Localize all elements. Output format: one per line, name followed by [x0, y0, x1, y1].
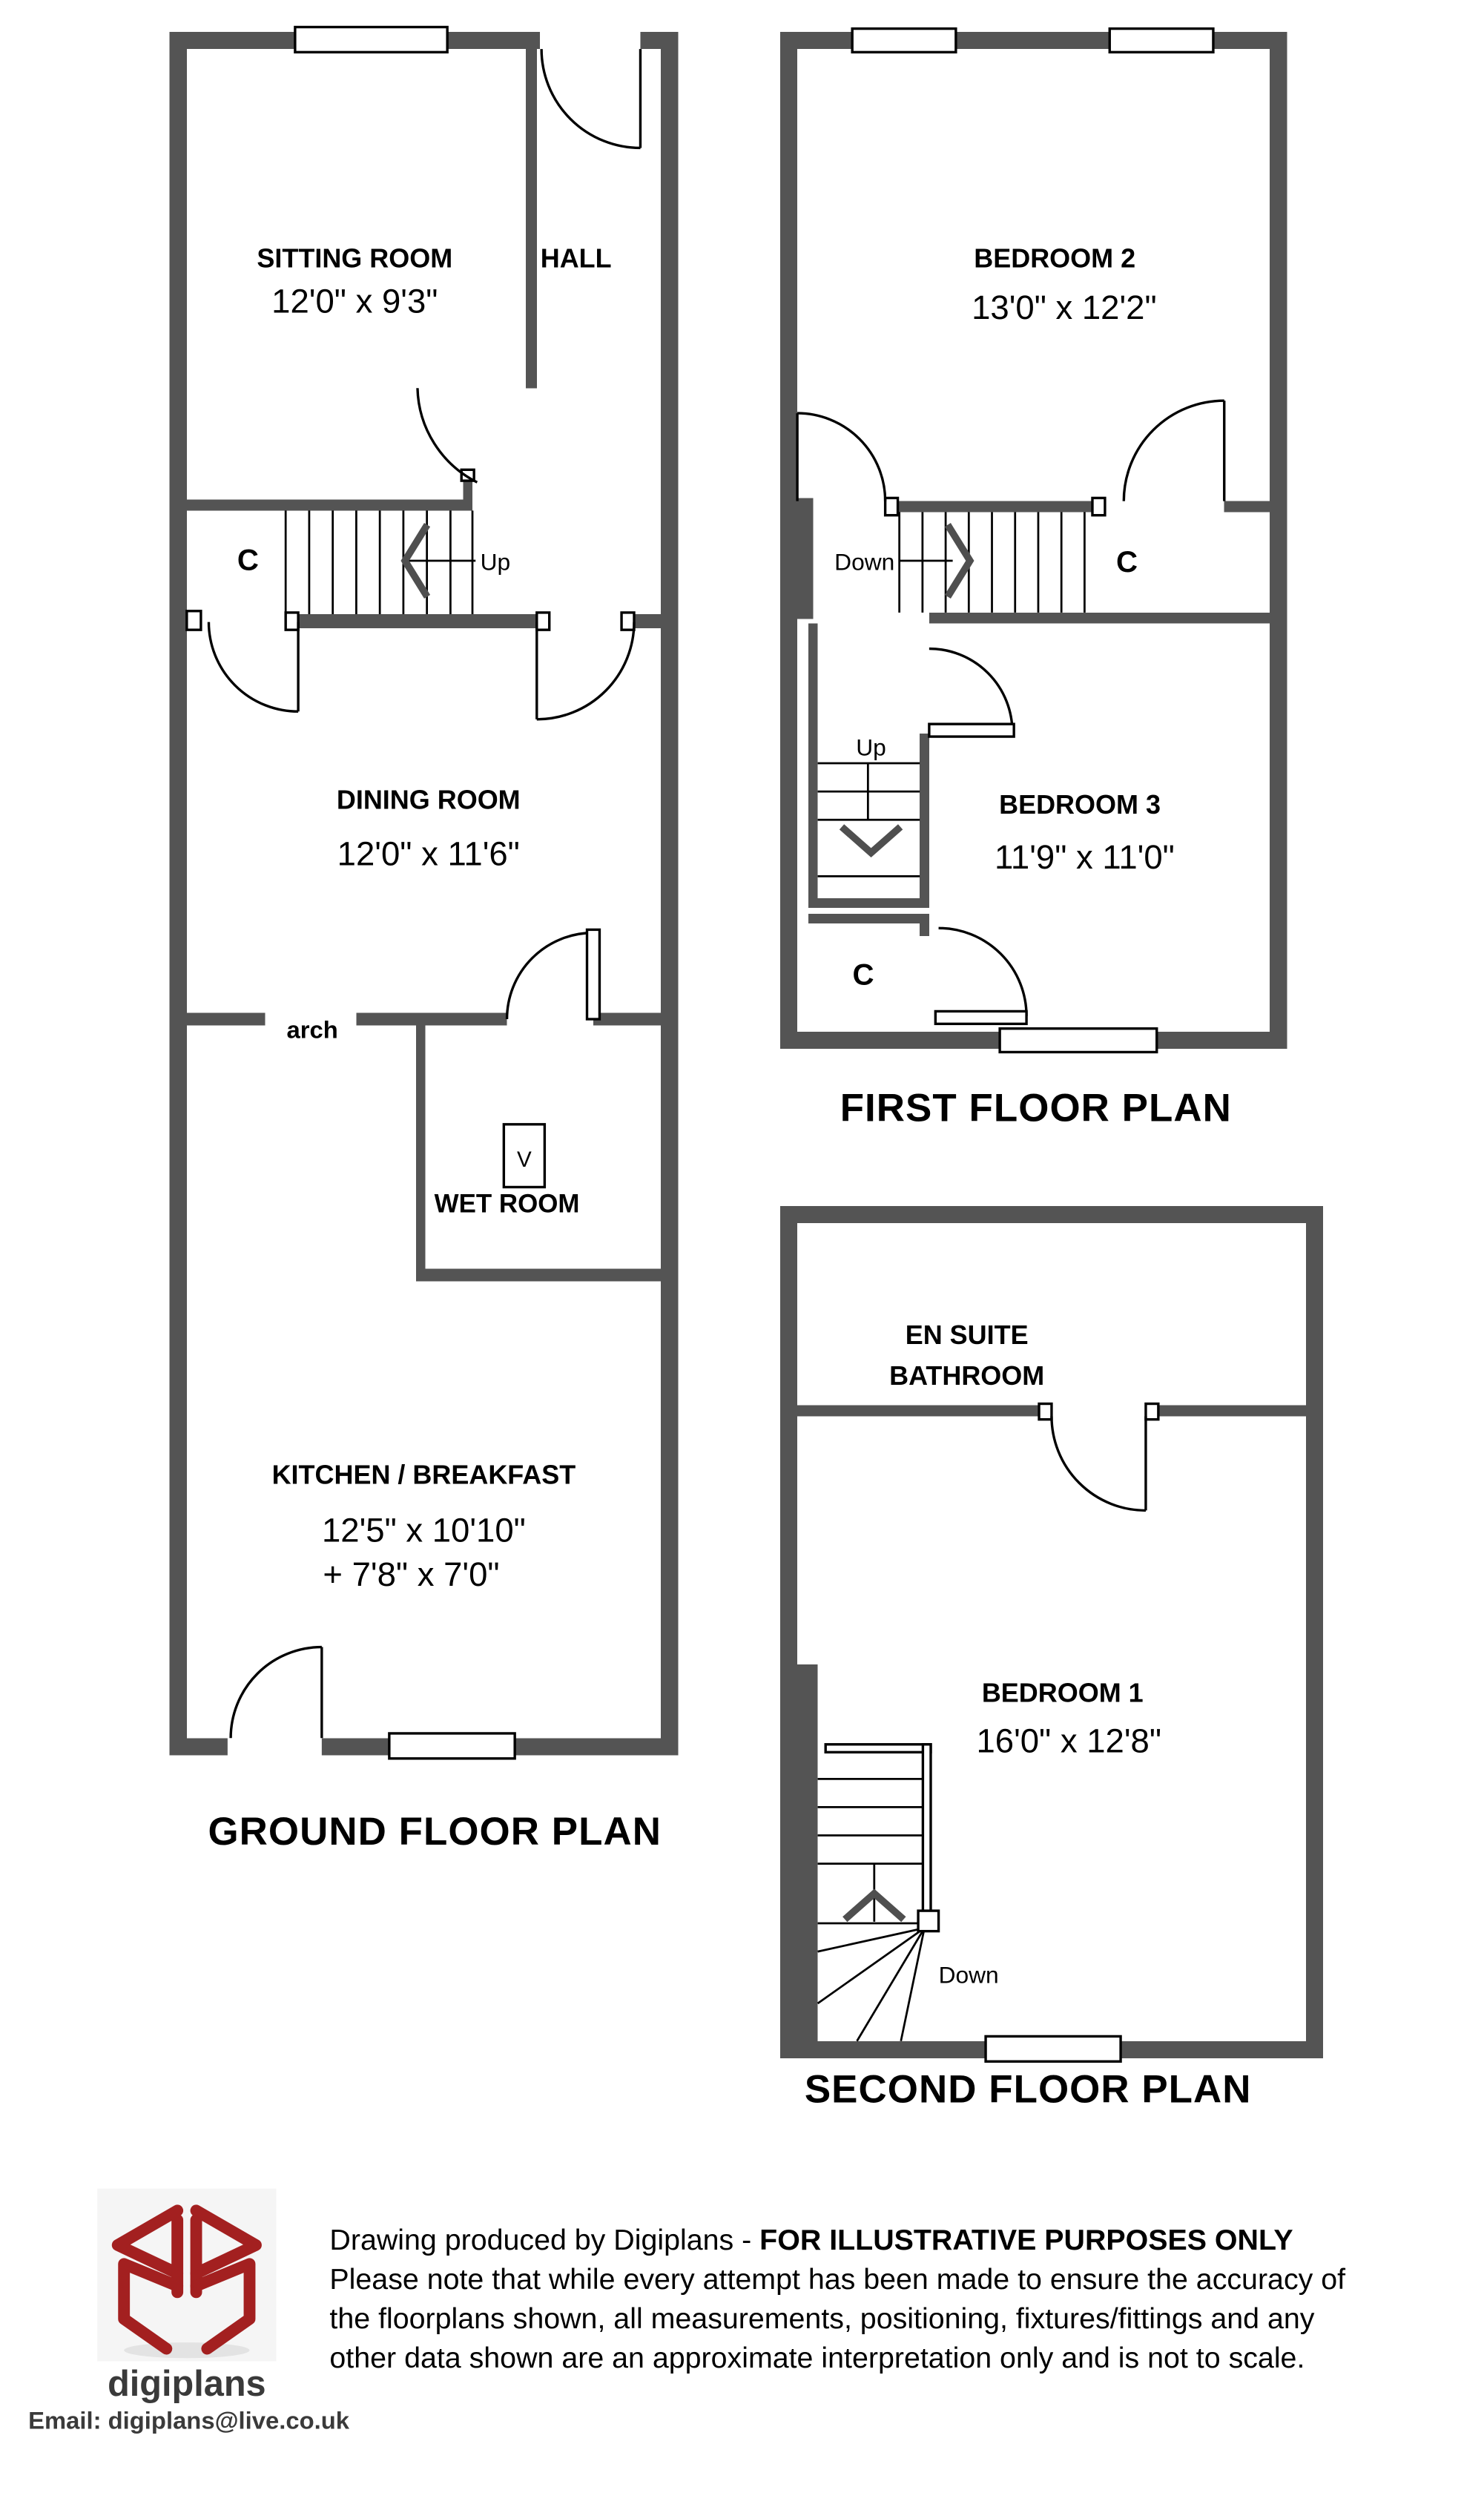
first-floor-walls: [780, 32, 1287, 1049]
bedroom2-window-left: [852, 29, 956, 53]
ground-floor-plan: V SITTING ROOM 12'0" x 9'3" HALL C Up DI…: [170, 27, 679, 1854]
down-label: Down: [939, 1961, 999, 1988]
digiplans-logo-icon: [97, 2189, 276, 2362]
stair-railing: [825, 1745, 931, 1753]
second-floor-title: SECOND FLOOR PLAN: [805, 2067, 1252, 2111]
floorplan-drawing: V SITTING ROOM 12'0" x 9'3" HALL C Up DI…: [0, 0, 1484, 2510]
cupboard-closet-label: C: [852, 958, 874, 991]
up-arrow-icon: [845, 829, 898, 853]
dining-room-dims: 12'0" x 11'6": [337, 835, 520, 873]
wet-room-label: WET ROOM: [435, 1189, 580, 1218]
bedroom3-window: [1000, 1029, 1157, 1053]
hall-label: HALL: [541, 243, 612, 273]
sitting-room-dims: 12'0" x 9'3": [271, 283, 438, 320]
vent-label: V: [517, 1147, 532, 1172]
first-floor-staircase-up: [818, 763, 920, 876]
bedroom2-dims: 13'0" x 12'2": [972, 289, 1157, 326]
kitchen-window: [389, 1733, 515, 1759]
cupboard-label: C: [237, 544, 259, 577]
sitting-room-label: SITTING ROOM: [257, 243, 452, 273]
kitchen-dims: 12'5" x 10'10": [322, 1512, 526, 1549]
email-text: Email: digiplans@live.co.uk: [28, 2406, 350, 2434]
disclaimer-line1: Drawing produced by Digiplans - FOR ILLU…: [329, 2224, 1293, 2256]
wet-room-door-leaf: [587, 929, 600, 1019]
disclaimer-line2: Please note that while every attempt has…: [329, 2263, 1345, 2296]
up-label: Up: [856, 734, 886, 760]
kitchen-dims2: + 7'8" x 7'0": [323, 1555, 499, 1593]
second-floor-walls: [780, 1206, 1323, 2058]
front-door-opening: [540, 30, 640, 51]
bedroom1-dims: 16'0" x 12'8": [976, 1722, 1161, 1759]
up-label: Up: [481, 549, 511, 576]
bedroom1-window: [986, 2036, 1121, 2061]
dining-room-label: DINING ROOM: [337, 784, 521, 814]
sitting-room-window: [295, 27, 447, 52]
ground-floor-staircase: [286, 510, 475, 614]
disclaimer-text: Drawing produced by Digiplans - FOR ILLU…: [329, 2224, 1345, 2374]
first-floor-plan: BEDROOM 2 13'0" x 12'2" Down C Up BEDROO…: [780, 29, 1287, 1130]
bedroom1-label: BEDROOM 1: [982, 1678, 1144, 1708]
disclaimer-line4: other data shown are an approximate inte…: [329, 2342, 1305, 2374]
stair-railing: [923, 1745, 931, 1917]
arch-label: arch: [287, 1015, 338, 1043]
first-floor-doors: [797, 401, 1224, 1024]
footer: digiplans Email: digiplans@live.co.uk Dr…: [28, 2189, 1345, 2434]
down-label: Down: [834, 549, 894, 576]
second-floor-doors: [1052, 1416, 1146, 1510]
first-floor-staircase-down: [900, 512, 1085, 612]
rear-door-opening: [228, 1736, 322, 1759]
wet-room-vent: V: [504, 1124, 544, 1188]
second-floor-staircase: [818, 1745, 939, 2041]
disclaimer-line3: the floorplans shown, all measurements, …: [329, 2302, 1314, 2335]
cupboard-right-label: C: [1116, 545, 1138, 579]
bedroom2-window-right: [1109, 29, 1213, 53]
bedroom3-dims: 11'9" x 11'0": [995, 838, 1175, 876]
kitchen-label: KITCHEN / BREAKFAST: [272, 1459, 576, 1489]
ground-floor-title: GROUND FLOOR PLAN: [208, 1810, 662, 1854]
bedroom2-label: BEDROOM 2: [974, 243, 1135, 273]
second-floor-plan: EN SUITE BATHROOM BEDROOM 1 16'0" x 12'8…: [780, 1206, 1323, 2111]
ensuite-label-line1: EN SUITE: [906, 1320, 1029, 1350]
ensuite-label-line2: BATHROOM: [889, 1360, 1044, 1391]
digiplans-wordmark: digiplans: [108, 2364, 266, 2404]
bedroom3-label: BEDROOM 3: [999, 789, 1161, 820]
closet-door-leaf: [935, 1011, 1026, 1024]
first-floor-title: FIRST FLOOR PLAN: [840, 1087, 1232, 1130]
newel-post: [918, 1911, 939, 1931]
bedroom3-door-leaf: [929, 724, 1014, 737]
